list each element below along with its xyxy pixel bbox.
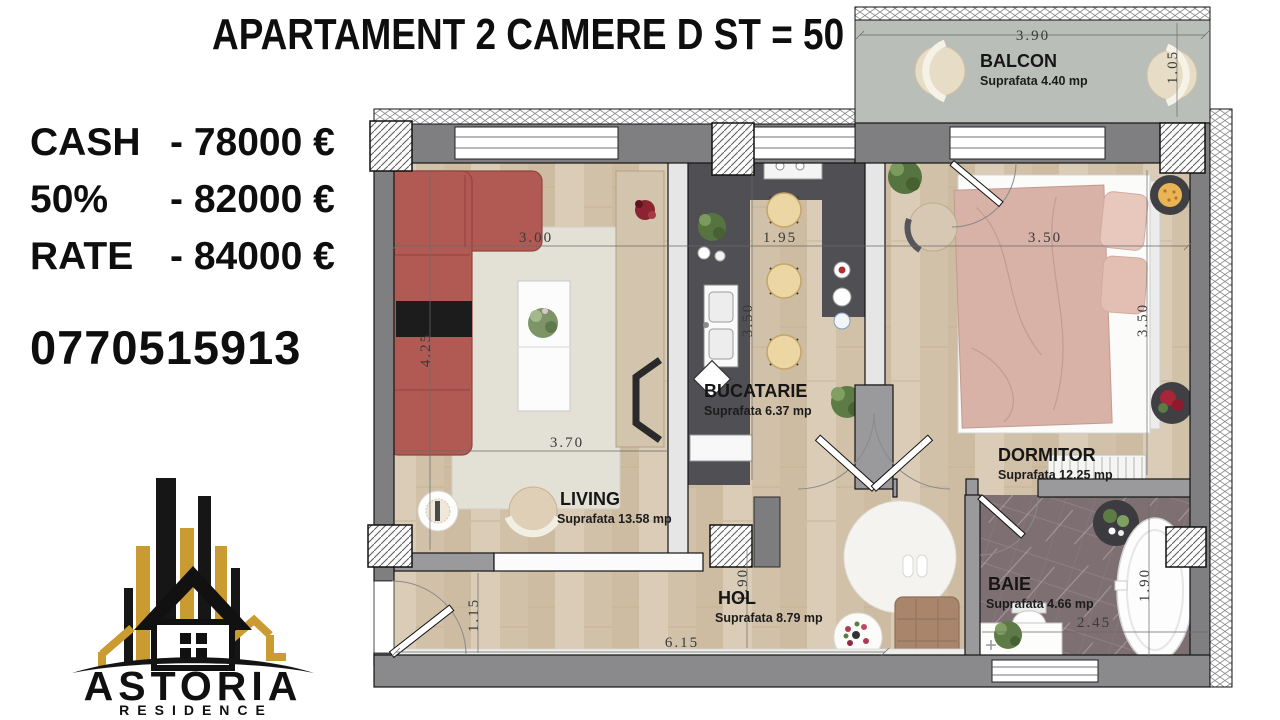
brand-logo: ASTORIA RESIDENCE bbox=[68, 438, 318, 716]
price-list: CASH - 78000 € 50% - 82000 € RATE - 8400… bbox=[30, 114, 335, 285]
hall-rug bbox=[844, 501, 956, 613]
dim-living-width: 3.00 bbox=[519, 230, 553, 246]
dim-hall-width: 6.15 bbox=[665, 635, 699, 651]
price-value: - 82000 € bbox=[170, 178, 335, 222]
room-label-baie: BAIE bbox=[988, 574, 1031, 594]
price-label: RATE bbox=[30, 235, 170, 279]
coffee-table bbox=[518, 281, 570, 411]
price-value: - 78000 € bbox=[170, 121, 335, 165]
room-area-dormitor: Suprafata 12.25 mp bbox=[998, 468, 1113, 482]
room-label-balcon: BALCON bbox=[980, 51, 1057, 71]
room-area-hol: Suprafata 8.79 mp bbox=[715, 611, 823, 625]
tv-sideboard bbox=[616, 171, 664, 447]
room-area-baie: Suprafata 4.66 mp bbox=[986, 597, 1094, 611]
room-area-bucatarie: Suprafata 6.37 mp bbox=[704, 404, 812, 418]
dim-balcony-depth: 1.05 bbox=[1165, 50, 1181, 84]
room-area-living: Suprafata 13.58 mp bbox=[557, 512, 672, 526]
price-label: CASH bbox=[30, 121, 170, 165]
dim-entry-width: 1.15 bbox=[466, 598, 482, 632]
bar-stools bbox=[767, 193, 801, 369]
nightstand-lamp bbox=[1150, 175, 1190, 215]
bedroom-plant bbox=[888, 160, 922, 194]
living-round-chair bbox=[508, 487, 558, 535]
dim-bath-width: 2.45 bbox=[1077, 615, 1111, 631]
room-label-bucatarie: BUCATARIE bbox=[704, 381, 807, 401]
dim-balcony-width: 3.90 bbox=[1016, 28, 1050, 44]
kitchen-plates bbox=[833, 262, 851, 329]
nightstand-flowers bbox=[1151, 382, 1193, 424]
floor-plan: 3.90 1.05 3.00 4.25 3.70 1.95 3.50 3.50 … bbox=[360, 5, 1235, 705]
kitchen-sink bbox=[703, 285, 738, 367]
room-area-balcon: Suprafata 4.40 mp bbox=[980, 74, 1088, 88]
price-row-cash: CASH - 78000 € bbox=[30, 114, 335, 171]
price-value: - 84000 € bbox=[170, 235, 335, 279]
dim-kitchen-height: 3.50 bbox=[740, 303, 756, 337]
dim-kitchen-width: 1.95 bbox=[763, 230, 797, 246]
flyer-canvas: APARTAMENT 2 CAMERE D ST = 50 MP CASH - … bbox=[0, 0, 1280, 720]
room-label-living: LIVING bbox=[560, 489, 620, 509]
phone-number: 0770515913 bbox=[30, 320, 301, 375]
room-label-hol: HOL bbox=[718, 588, 756, 608]
bed bbox=[954, 175, 1160, 433]
dim-living-width2: 3.70 bbox=[550, 435, 584, 451]
price-label: 50% bbox=[30, 178, 170, 222]
dim-bath-height: 1.90 bbox=[1137, 568, 1153, 602]
dim-living-height: 4.25 bbox=[418, 333, 434, 367]
logo-subtitle: RESIDENCE bbox=[119, 702, 273, 716]
dim-bedroom-height: 3.50 bbox=[1135, 303, 1151, 337]
living-side-table bbox=[418, 491, 458, 531]
price-row-50: 50% - 82000 € bbox=[30, 171, 335, 228]
price-row-rate: RATE - 84000 € bbox=[30, 228, 335, 285]
room-label-dormitor: DORMITOR bbox=[998, 445, 1096, 465]
dim-bedroom-width: 3.50 bbox=[1028, 230, 1062, 246]
